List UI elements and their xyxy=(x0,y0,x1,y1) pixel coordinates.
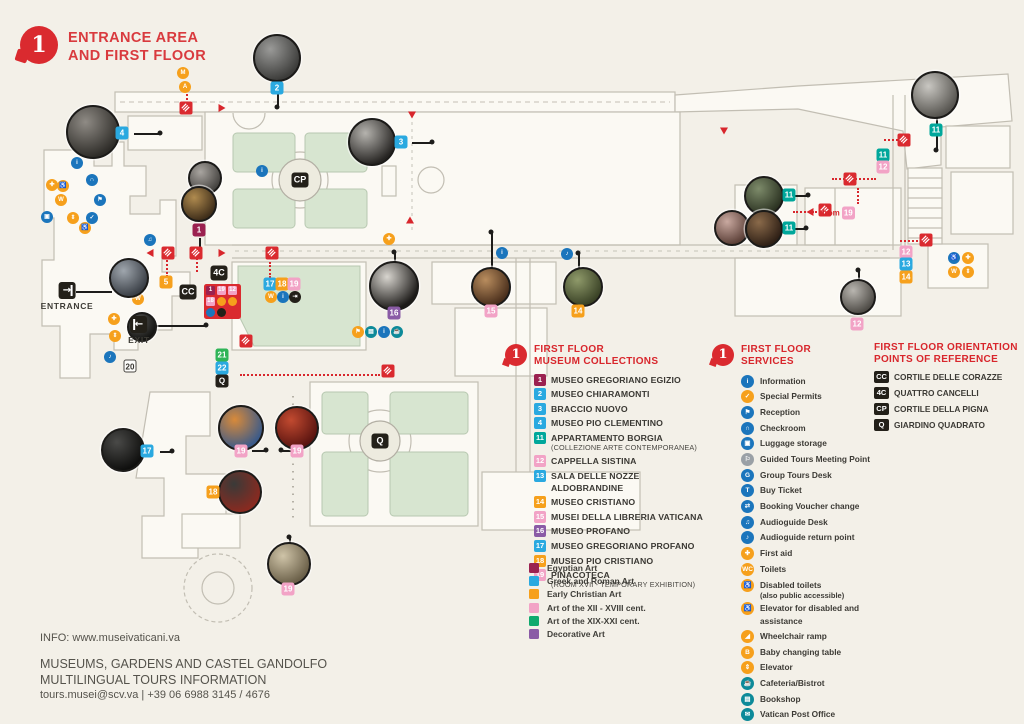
service-label: Wheelchair ramp xyxy=(760,630,827,643)
direction-arrow-icon xyxy=(720,128,728,135)
elevator-disabled-icon: ♿ xyxy=(741,602,754,615)
page-footer: INFO: www.museivaticani.va MUSEUMS, GARD… xyxy=(40,632,327,701)
collection-item: 1MUSEO GREGORIANO EGIZIO xyxy=(534,374,710,386)
map-service-icon: ✚ xyxy=(962,252,974,264)
legend-color-swatch xyxy=(529,616,539,626)
service-item: BBaby changing table xyxy=(741,646,880,660)
map-service-icon: ▣ xyxy=(41,211,53,223)
entrance-panel-badge: 19 xyxy=(217,286,226,295)
map-service-icon: ⚑ xyxy=(94,194,106,206)
service-item: ⚑Reception xyxy=(741,406,880,420)
orientation-code-badge: Q xyxy=(874,419,889,431)
map-connector-dot xyxy=(275,105,280,110)
route-dotted-path xyxy=(857,188,859,204)
legend-item: Decorative Art xyxy=(529,629,646,639)
map-photo-thumbnail xyxy=(253,34,301,82)
service-label: Reception xyxy=(760,406,800,419)
orientation-code-badge: CP xyxy=(874,403,889,415)
collection-item: 15MUSEI DELLA LIBRERIA VATICANA xyxy=(534,511,710,523)
orientation-label: CORTILE DELLE CORAZZE xyxy=(894,371,1002,383)
map-connector-line xyxy=(151,325,206,327)
map-photo-thumbnail xyxy=(181,186,217,222)
services-floor-badge: 1 xyxy=(712,344,734,366)
exit-label: EXIT xyxy=(128,335,150,345)
collection-label: MUSEI DELLA LIBRERIA VATICANA xyxy=(551,511,703,523)
service-label: Booking Voucher change xyxy=(760,500,859,513)
map-service-icon: ♿ xyxy=(57,180,69,192)
collection-number-badge: 12 xyxy=(534,455,546,467)
map-marker-11: 11 xyxy=(783,189,796,202)
legend-label: Decorative Art xyxy=(547,629,605,639)
service-item: ♿Disabled toilets(also public accessible… xyxy=(741,579,880,600)
service-label: Elevator for disabled and assistance xyxy=(760,602,880,628)
map-photo-thumbnail xyxy=(369,261,419,311)
page-header: 1 ENTRANCE AREA AND FIRST FLOOR xyxy=(20,26,206,65)
orientation-heading: FIRST FLOOR ORIENTATION POINTS OF REFERE… xyxy=(874,342,1018,366)
service-item: ✓Special Permits xyxy=(741,390,880,404)
map-photo-thumbnail xyxy=(471,267,511,307)
service-item: GGroup Tours Desk xyxy=(741,469,880,483)
collection-label: APPARTAMENTO BORGIA(COLLEZIONE ARTE CONT… xyxy=(551,432,697,453)
orientation-item: QGIARDINO QUADRATO xyxy=(874,419,1024,431)
collection-sublabel: (COLLEZIONE ARTE CONTEMPORANEA) xyxy=(551,444,697,453)
map-marker-12: 12 xyxy=(877,161,890,174)
service-item: ▤Bookshop xyxy=(741,693,880,707)
map-photo-thumbnail xyxy=(267,542,311,586)
direction-arrow-icon xyxy=(219,249,226,257)
footer-heading: MUSEUMS, GARDENS AND CASTEL GANDOLFO MUL… xyxy=(40,656,327,688)
legend-item: Greek and Roman Art xyxy=(529,576,646,586)
service-item: ◢Wheelchair ramp xyxy=(741,630,880,644)
collection-number-badge: 14 xyxy=(534,496,546,508)
map-service-icon: ⇕ xyxy=(962,266,974,278)
orientation-label: GIARDINO QUADRATO xyxy=(894,419,985,431)
from-pinacoteca-label: from 19 xyxy=(822,207,855,220)
service-item: ♿Elevator for disabled and assistance xyxy=(741,602,880,628)
services-panel: 1 FIRST FLOOR SERVICES iInformation✓Spec… xyxy=(712,344,880,724)
collection-number-badge: 16 xyxy=(534,525,546,537)
stairs-icon xyxy=(382,365,395,378)
service-item: ✉Vatican Post Office xyxy=(741,708,880,722)
map-service-icon: W xyxy=(265,291,277,303)
map-photo-thumbnail xyxy=(109,258,149,298)
map-photo-thumbnail xyxy=(563,267,603,307)
first-aid-icon: ✚ xyxy=(741,547,754,560)
map-marker-17: 17 xyxy=(141,445,154,458)
entrance-label: ENTRANCE xyxy=(41,301,94,311)
collection-number-badge: 1 xyxy=(534,374,546,386)
map-service-icon: W xyxy=(948,266,960,278)
map-service-icon: i xyxy=(71,157,83,169)
service-item: TBuy Ticket xyxy=(741,484,880,498)
map-photo-thumbnail xyxy=(911,71,959,119)
orientation-item: CPCORTILE DELLA PIGNA xyxy=(874,403,1024,415)
wheelchair-ramp-icon: ◢ xyxy=(741,630,754,643)
legend-label: Egyptian Art xyxy=(547,563,597,573)
stairs-icon xyxy=(162,247,175,260)
map-service-icon: M xyxy=(177,67,189,79)
entrance-panel-badge: 18 xyxy=(206,297,215,306)
map-marker-19: 19 xyxy=(288,278,301,291)
map-service-icon: ☕ xyxy=(391,326,403,338)
map-connector-dot xyxy=(158,131,163,136)
map-service-icon: ✚ xyxy=(108,313,120,325)
service-label: Baby changing table xyxy=(760,646,841,659)
info-url[interactable]: INFO: www.museivaticani.va xyxy=(40,632,327,644)
entrance-icon: → xyxy=(58,282,75,299)
legend-item: Early Christian Art xyxy=(529,589,646,599)
collection-item: 11APPARTAMENTO BORGIA(COLLEZIONE ARTE CO… xyxy=(534,432,710,453)
collection-label: SALA DELLE NOZZE ALDOBRANDINE xyxy=(551,470,710,494)
map-connector-dot xyxy=(170,449,175,454)
map-connector-dot xyxy=(279,448,284,453)
luggage-icon: ▣ xyxy=(741,437,754,450)
service-label: First aid xyxy=(760,547,792,560)
legend-item: Art of the XII - XVIII cent. xyxy=(529,603,646,613)
orientation-code-badge: 4C xyxy=(874,387,889,399)
map-photo-thumbnail xyxy=(745,210,783,248)
map-service-icon: ♪ xyxy=(104,351,116,363)
map-connector-dot xyxy=(489,230,494,235)
collection-item: 3BRACCIO NUOVO xyxy=(534,403,710,415)
collection-number-badge: 17 xyxy=(534,540,546,552)
map-marker-11: 11 xyxy=(783,222,796,235)
legend-color-swatch xyxy=(529,563,539,573)
map-photo-thumbnail xyxy=(840,279,876,315)
exit-icon: ← xyxy=(130,316,147,333)
collection-item: 13SALA DELLE NOZZE ALDOBRANDINE xyxy=(534,470,710,494)
direction-arrow-icon xyxy=(807,208,814,216)
map-service-icon: ⇕ xyxy=(67,212,79,224)
collection-label: CAPPELLA SISTINA xyxy=(551,455,637,467)
bookshop-icon: ▤ xyxy=(741,693,754,706)
legend-color-swatch xyxy=(529,603,539,613)
service-label: Elevator xyxy=(760,661,793,674)
services-heading: FIRST FLOOR SERVICES xyxy=(741,344,811,368)
map-service-icon: ♫ xyxy=(144,234,156,246)
post-office-icon: ✉ xyxy=(741,708,754,721)
orientation-item: 4CQUATTRO CANCELLI xyxy=(874,387,1024,399)
collection-label: MUSEO CHIARAMONTI xyxy=(551,388,650,400)
collection-label: BRACCIO NUOVO xyxy=(551,403,628,415)
map-marker-Q: Q xyxy=(372,434,389,449)
service-label: Audioguide Desk xyxy=(760,516,828,529)
floor-number-badge: 1 xyxy=(20,26,58,64)
information-icon: i xyxy=(741,375,754,388)
route-dotted-path xyxy=(269,262,271,278)
map-marker-2: 2 xyxy=(271,82,284,95)
legend-color-swatch xyxy=(529,576,539,586)
map-service-icon: A xyxy=(179,81,191,93)
entrance-panel-icon xyxy=(206,308,215,317)
service-label: Disabled toilets(also public accessible) xyxy=(760,579,844,600)
map-connector-dot xyxy=(804,226,809,231)
collection-item: 2MUSEO CHIARAMONTI xyxy=(534,388,710,400)
stairs-icon xyxy=(920,234,933,247)
collection-label: MUSEO PIO CLEMENTINO xyxy=(551,417,663,429)
map-service-icon: ⚑ xyxy=(352,326,364,338)
map-marker-11: 11 xyxy=(930,124,943,137)
exit-marker: ← EXIT xyxy=(128,316,150,345)
service-label: Vatican Post Office xyxy=(760,708,835,721)
service-item: iInformation xyxy=(741,375,880,389)
service-label: Bookshop xyxy=(760,693,801,706)
map-service-icon: i xyxy=(277,291,289,303)
service-item: ♫Audioguide Desk xyxy=(741,516,880,530)
map-marker-13: 13 xyxy=(900,258,913,271)
entrance-marker: → ENTRANCE xyxy=(41,282,94,311)
collections-floor-badge: 1 xyxy=(505,344,527,366)
audioguide-return-icon: ♪ xyxy=(741,531,754,544)
map-marker-21: 21 xyxy=(216,349,229,362)
service-sublabel: (also public accessible) xyxy=(760,592,844,600)
map-marker-22: 22 xyxy=(216,362,229,375)
collection-number-badge: 11 xyxy=(534,432,546,444)
stairs-icon xyxy=(180,102,193,115)
map-service-icon: i xyxy=(256,165,268,177)
direction-arrow-icon xyxy=(408,112,416,119)
map-service-icon: ∩ xyxy=(86,174,98,186)
map-marker-16: 16 xyxy=(388,307,401,320)
orientation-panel: FIRST FLOOR ORIENTATION POINTS OF REFERE… xyxy=(874,342,1024,435)
map-connector-dot xyxy=(856,268,861,273)
stairs-icon xyxy=(266,247,279,260)
collection-item: 14MUSEO CRISTIANO xyxy=(534,496,710,508)
map-service-icon: ⇕ xyxy=(109,330,121,342)
service-label: Special Permits xyxy=(760,390,822,403)
map-marker-3: 3 xyxy=(395,136,408,149)
map-connector-dot xyxy=(264,448,269,453)
map-marker-CC: CC xyxy=(180,285,197,300)
entrance-panel-icon xyxy=(228,297,237,306)
map-marker-CP: CP xyxy=(292,173,309,188)
map-service-icon: i xyxy=(496,247,508,259)
collection-item: 17MUSEO GREGORIANO PROFANO xyxy=(534,540,710,552)
direction-arrow-icon xyxy=(147,249,154,257)
from-badge-19: 19 xyxy=(842,207,855,220)
map-service-icon: ♿ xyxy=(79,222,91,234)
cafeteria-icon: ☕ xyxy=(741,677,754,690)
map-service-icon: ✚ xyxy=(383,233,395,245)
collection-item: 12CAPPELLA SISTINA xyxy=(534,455,710,467)
stairs-icon xyxy=(844,173,857,186)
art-period-legend: Egyptian ArtGreek and Roman ArtEarly Chr… xyxy=(529,563,646,642)
legend-label: Art of the XII - XVIII cent. xyxy=(547,603,646,613)
map-connector-dot xyxy=(204,323,209,328)
stairs-icon xyxy=(190,247,203,260)
map-marker-19: 19 xyxy=(282,583,295,596)
route-dotted-path xyxy=(900,240,918,242)
service-label: Luggage storage xyxy=(760,437,827,450)
service-label: Buy Ticket xyxy=(760,484,802,497)
map-service-icon: ✓ xyxy=(86,212,98,224)
map-marker-19: 19 xyxy=(235,445,248,458)
legend-color-swatch xyxy=(529,629,539,639)
map-service-icon: i xyxy=(378,326,390,338)
collection-label: MUSEO CRISTIANO xyxy=(551,496,635,508)
direction-arrow-icon xyxy=(406,217,414,224)
collection-number-badge: 3 xyxy=(534,403,546,415)
voucher-icon: ⇄ xyxy=(741,500,754,513)
map-photo-thumbnail xyxy=(348,118,396,166)
direction-arrow-icon xyxy=(219,104,226,112)
toilets-icon: WC xyxy=(741,563,754,576)
collection-item: 16MUSEO PROFANO xyxy=(534,525,710,537)
guided-tours-icon: ⚐ xyxy=(741,453,754,466)
map-photo-thumbnail xyxy=(275,406,319,450)
collection-number-badge: 15 xyxy=(534,511,546,523)
collections-heading: FIRST FLOOR MUSEUM COLLECTIONS xyxy=(534,344,658,368)
collection-label: MUSEO GREGORIANO EGIZIO xyxy=(551,374,681,386)
stairs-icon xyxy=(898,134,911,147)
map-service-icon: ♪ xyxy=(561,248,573,260)
collection-item: 4MUSEO PIO CLEMENTINO xyxy=(534,417,710,429)
map-photo-thumbnail xyxy=(218,470,262,514)
legend-item: Art of the XIX-XXI cent. xyxy=(529,616,646,626)
service-label: Toilets xyxy=(760,563,786,576)
map-marker-14: 14 xyxy=(900,271,913,284)
map-connector-dot xyxy=(392,250,397,255)
service-item: ⚐Guided Tours Meeting Point xyxy=(741,453,880,467)
service-item: ✚First aid xyxy=(741,547,880,561)
orientation-code-badge: CC xyxy=(874,371,889,383)
service-item: WCToilets xyxy=(741,563,880,577)
disabled-toilets-icon: ♿ xyxy=(741,579,754,592)
entrance-panel-icon xyxy=(217,308,226,317)
map-photo-thumbnail xyxy=(101,428,145,472)
map-service-icon: W xyxy=(55,194,67,206)
entrance-panel-badge: 12 xyxy=(228,286,237,295)
audioguide-desk-icon: ♫ xyxy=(741,516,754,529)
service-item: ♪Audioguide return point xyxy=(741,531,880,545)
special-permits-icon: ✓ xyxy=(741,390,754,403)
buy-ticket-icon: T xyxy=(741,484,754,497)
orientation-item: CCCORTILE DELLE CORAZZE xyxy=(874,371,1024,383)
service-item: ☕Cafeteria/Bistrot xyxy=(741,677,880,691)
orientation-label: QUATTRO CANCELLI xyxy=(894,387,979,399)
elevator-icon: ⇕ xyxy=(741,661,754,674)
service-item: ∩Checkroom xyxy=(741,422,880,436)
map-marker-4C: 4C xyxy=(211,266,228,281)
service-item: ▣Luggage storage xyxy=(741,437,880,451)
entrance-services-panel: 1191218 xyxy=(204,284,241,319)
map-connector-dot xyxy=(287,535,292,540)
footer-contacts[interactable]: tours.musei@scv.va | +39 06 6988 3145 / … xyxy=(40,689,327,701)
vatican-museums-first-floor-map: 1 ENTRANCE AREA AND FIRST FLOOR xyxy=(0,0,1024,724)
legend-label: Greek and Roman Art xyxy=(547,576,634,586)
stairs-icon xyxy=(240,335,253,348)
service-item: ⇄Booking Voucher change xyxy=(741,500,880,514)
collection-number-badge: 2 xyxy=(534,388,546,400)
reception-icon: ⚑ xyxy=(741,406,754,419)
map-photo-thumbnail xyxy=(66,105,120,159)
map-connector-dot xyxy=(806,193,811,198)
map-connector-line xyxy=(134,133,160,135)
collection-number-badge: 4 xyxy=(534,417,546,429)
map-marker-15: 15 xyxy=(485,305,498,318)
museum-collections-panel: 1 FIRST FLOOR MUSEUM COLLECTIONS 1MUSEO … xyxy=(505,344,710,592)
map-connector-dot xyxy=(576,251,581,256)
entrance-panel-icon xyxy=(217,297,226,306)
map-service-icon: ⇥ xyxy=(289,291,301,303)
map-marker-5: 5 xyxy=(160,276,173,289)
map-marker-1: 1 xyxy=(193,224,206,237)
page-title: ENTRANCE AREA AND FIRST FLOOR xyxy=(68,26,206,65)
map-marker-19: 19 xyxy=(291,445,304,458)
map-service-icon: ♿ xyxy=(948,252,960,264)
service-item: ⇕Elevator xyxy=(741,661,880,675)
service-label: Cafeteria/Bistrot xyxy=(760,677,825,690)
map-marker-18: 18 xyxy=(207,486,220,499)
map-connector-dot xyxy=(934,148,939,153)
map-marker-12: 12 xyxy=(851,318,864,331)
service-label: Checkroom xyxy=(760,422,806,435)
legend-color-swatch xyxy=(529,589,539,599)
orientation-label: CORTILE DELLA PIGNA xyxy=(894,403,989,415)
map-connector-dot xyxy=(430,140,435,145)
service-label: Audioguide return point xyxy=(760,531,854,544)
legend-item: Egyptian Art xyxy=(529,563,646,573)
map-marker-4: 4 xyxy=(116,127,129,140)
group-tours-icon: G xyxy=(741,469,754,482)
service-label: Information xyxy=(760,375,806,388)
legend-label: Early Christian Art xyxy=(547,589,621,599)
map-connector-line xyxy=(491,232,493,269)
collection-label: MUSEO PROFANO xyxy=(551,525,630,537)
route-dotted-path xyxy=(240,374,380,376)
map-marker-14: 14 xyxy=(572,305,585,318)
service-label: Guided Tours Meeting Point xyxy=(760,453,870,466)
map-service-icon: ▤ xyxy=(365,326,377,338)
checkroom-icon: ∩ xyxy=(741,422,754,435)
map-marker-Q: Q xyxy=(216,375,229,388)
entrance-panel-badge: 1 xyxy=(206,286,215,295)
collection-number-badge: 13 xyxy=(534,470,546,482)
service-label: Group Tours Desk xyxy=(760,469,832,482)
legend-label: Art of the XIX-XXI cent. xyxy=(547,616,640,626)
baby-changing-icon: B xyxy=(741,646,754,659)
map-marker-20: 20 xyxy=(124,360,137,373)
collection-label: MUSEO GREGORIANO PROFANO xyxy=(551,540,695,552)
